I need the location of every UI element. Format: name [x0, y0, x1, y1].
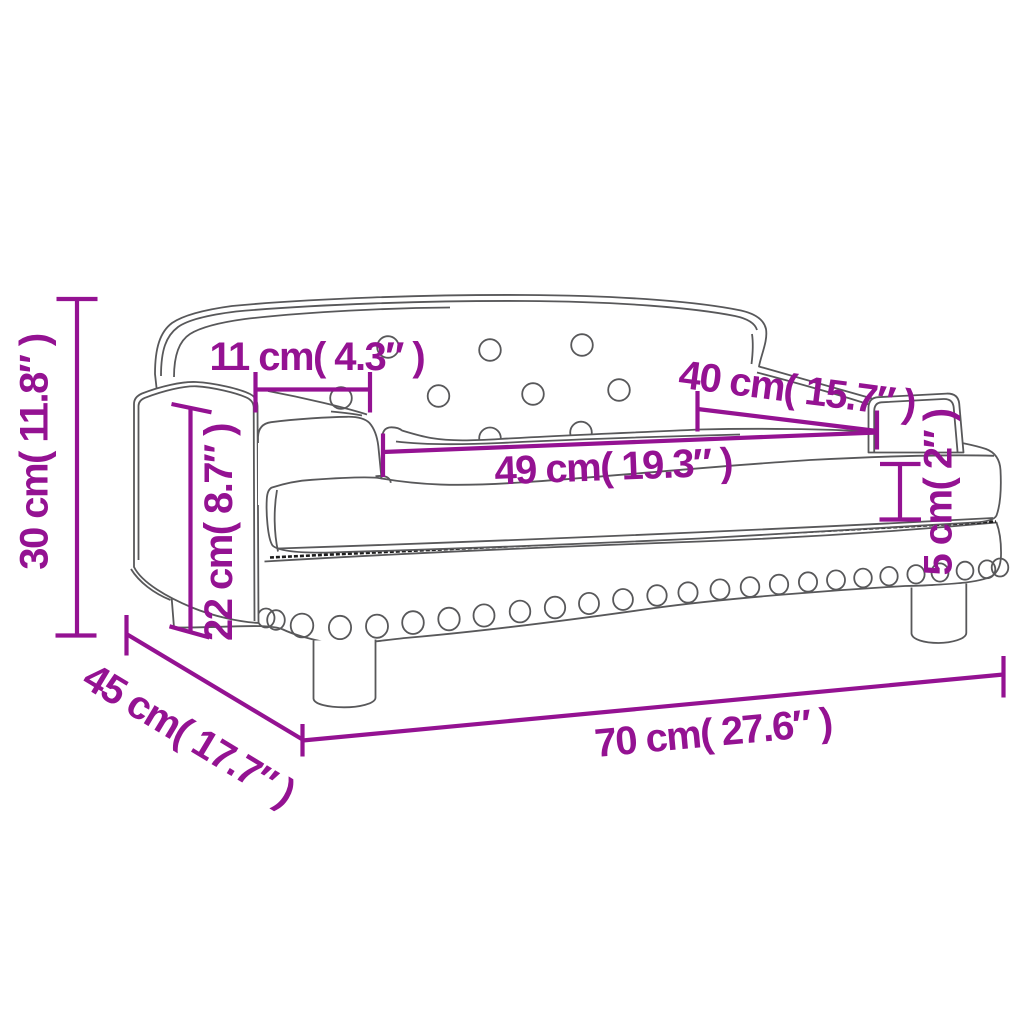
svg-text:11 cm( 4.3″ ): 11 cm( 4.3″ )	[210, 335, 425, 379]
svg-text:49 cm( 19.3″ ): 49 cm( 19.3″ )	[494, 440, 733, 493]
svg-text:22 cm( 8.7″ ): 22 cm( 8.7″ )	[197, 424, 241, 641]
svg-text:5 cm( 2″ ): 5 cm( 2″ )	[917, 409, 961, 575]
svg-text:30 cm( 11.8″ ): 30 cm( 11.8″ )	[13, 334, 57, 570]
